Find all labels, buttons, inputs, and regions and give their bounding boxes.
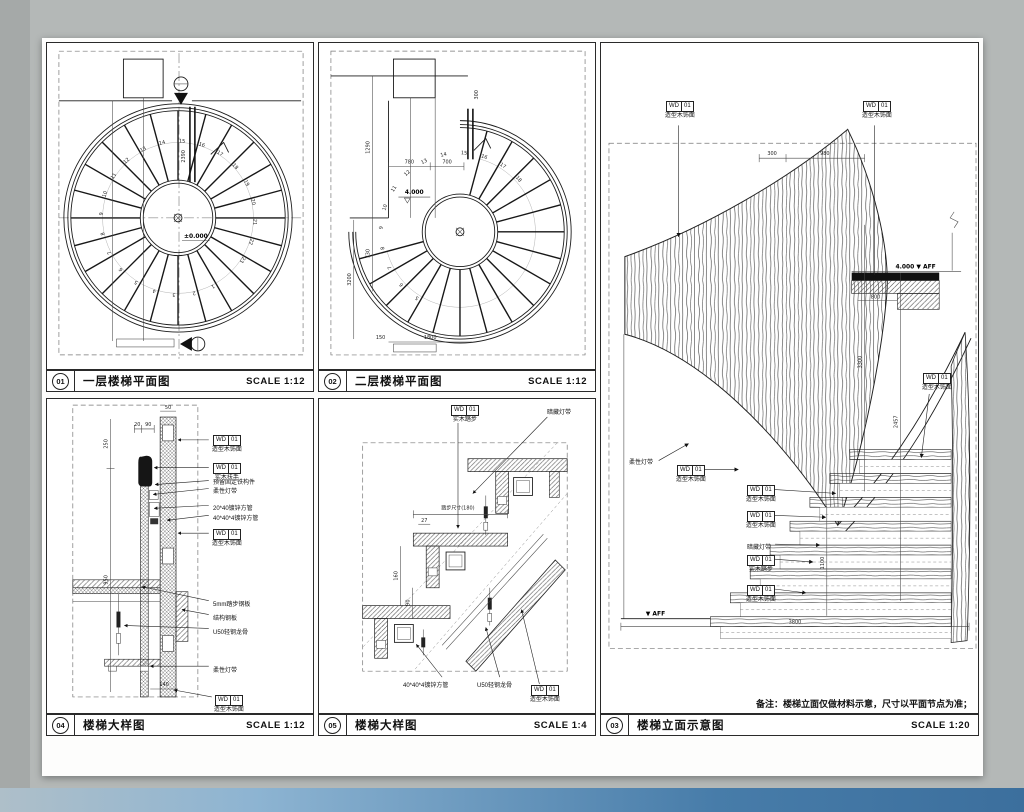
stair-tread-line bbox=[85, 164, 145, 199]
panel-title: 楼梯立面示意图 bbox=[637, 717, 725, 733]
stair-tread-line bbox=[487, 259, 534, 306]
material-tag: WD01造型木饰面 bbox=[923, 373, 951, 384]
tread-plate bbox=[73, 580, 160, 588]
stair-tread-line bbox=[496, 205, 560, 222]
dim-20: 20 bbox=[134, 422, 140, 428]
tread-number: 11 bbox=[390, 185, 398, 194]
dim-950: 950 bbox=[104, 575, 110, 584]
title-strip-05: 05 楼梯大样图 SCALE 1:4 bbox=[318, 714, 596, 736]
elevation-note: 备注：楼梯立面仅做材料示意，尺寸以平面节点为准； bbox=[756, 697, 972, 710]
stair-tread-line bbox=[493, 251, 551, 284]
tread-number: 15 bbox=[461, 150, 468, 156]
handrail-profile bbox=[138, 456, 152, 487]
dim-800: 800 bbox=[871, 294, 880, 300]
tread-number: 11 bbox=[110, 172, 118, 181]
title-strip-04: 04 楼梯大样图 SCALE 1:12 bbox=[46, 714, 314, 736]
tread-number: 2 bbox=[192, 289, 196, 296]
dim-1800: 1800 bbox=[424, 335, 437, 341]
dim-780: 780 bbox=[405, 159, 414, 165]
title-strip-01: 01 一层楼梯平面图 SCALE 1:12 bbox=[46, 370, 314, 392]
stair-tread-line bbox=[74, 228, 141, 246]
elevation-drawing: 800 4.000 ▼ AFF 300 980 3300 2457 1100 bbox=[601, 43, 978, 713]
label-tube-4040: 40*40*4镀锌方管 bbox=[403, 680, 448, 689]
stair-tread-line bbox=[211, 164, 271, 199]
tread-number: 10 bbox=[382, 204, 390, 212]
label-flex-light-strip: 柔性灯带 bbox=[213, 486, 237, 495]
stair-tread-line bbox=[85, 237, 145, 272]
stair-tread-line bbox=[124, 251, 159, 311]
panel-plan-level1: 1234567891011121314151617181920212223 23… bbox=[46, 42, 314, 370]
dim-3200: 3200 bbox=[347, 273, 353, 286]
level-4000: 4.000 bbox=[405, 189, 424, 196]
panel-elevation: 800 4.000 ▼ AFF 300 980 3300 2457 1100 bbox=[600, 42, 979, 714]
stair-tread-line bbox=[493, 180, 551, 213]
panel-scale: SCALE 1:20 bbox=[911, 720, 970, 731]
right-wood-band bbox=[951, 332, 970, 642]
detail-number: 03 bbox=[606, 717, 623, 734]
panel-title: 二层楼梯平面图 bbox=[355, 373, 443, 389]
tread-number: 13 bbox=[420, 158, 428, 166]
plan-level2-drawing: 56789101112131415161718 1290 730 780 700 bbox=[319, 43, 595, 369]
tread-number: 4 bbox=[152, 287, 157, 294]
tread-number: 22 bbox=[247, 238, 255, 246]
dim-1100: 1100 bbox=[820, 557, 826, 570]
dim-300: 300 bbox=[474, 90, 480, 99]
tread-number: 16 bbox=[198, 141, 206, 149]
panel-scale: SCALE 1:12 bbox=[528, 376, 587, 387]
tread-numbers: 56789101112131415161718 bbox=[379, 150, 523, 301]
label-embed-part: 预留固定铁构件 bbox=[213, 477, 255, 486]
plan-level1-drawing: 1234567891011121314151617181920212223 23… bbox=[47, 43, 313, 369]
stair-tread-line bbox=[211, 237, 271, 272]
panel-scale: SCALE 1:12 bbox=[246, 720, 305, 731]
tread-number: 17 bbox=[215, 150, 224, 158]
tread-number: 19 bbox=[242, 179, 250, 187]
label-hidden-light-strip: 暗藏灯带 bbox=[747, 542, 771, 551]
tag-label: 造型木饰面 bbox=[665, 112, 695, 120]
tread-number: 23 bbox=[238, 255, 246, 264]
dim-3300: 3300 bbox=[858, 356, 864, 369]
dim-160: 160 bbox=[393, 571, 399, 580]
tread-number: 8 bbox=[100, 232, 107, 236]
dim-27: 27 bbox=[421, 518, 427, 524]
tread-number: 7 bbox=[387, 265, 394, 271]
tread-number: 16 bbox=[480, 153, 488, 161]
dim-2390: 2390 bbox=[181, 150, 187, 163]
dim-300: 300 bbox=[767, 151, 776, 157]
dim-250: 250 bbox=[104, 439, 110, 448]
tread-number: 20 bbox=[249, 198, 256, 205]
label-5mm-plate: 5mm踏步钢板 bbox=[213, 599, 250, 608]
tread-number: 15 bbox=[179, 138, 186, 144]
material-tag: WD01实木扶手 bbox=[213, 463, 241, 474]
material-tag: WD01造型木饰面 bbox=[747, 485, 775, 496]
dim-90: 90 bbox=[145, 422, 151, 428]
panel-title: 一层楼梯平面图 bbox=[83, 373, 171, 389]
detail-number: 05 bbox=[324, 717, 341, 734]
stair-stringer bbox=[466, 560, 565, 671]
lower-tread bbox=[363, 606, 450, 619]
material-tag: WD01造型木饰面 bbox=[747, 585, 775, 596]
dim-90: 90 bbox=[405, 600, 411, 606]
material-tag: WD01造型木饰面 bbox=[677, 465, 705, 476]
material-tag: WD01实木踏步 bbox=[747, 555, 775, 566]
mid-tread bbox=[413, 533, 507, 546]
dim-2457: 2457 bbox=[893, 415, 899, 428]
stair-tread-line bbox=[150, 114, 168, 181]
stair-tread-line bbox=[433, 268, 450, 332]
label-flex-light-strip: 柔性灯带 bbox=[213, 665, 237, 674]
dim-730: 730 bbox=[366, 249, 372, 258]
desktop-left-strip bbox=[0, 0, 30, 790]
label-flex-light-strip: 柔性灯带 bbox=[629, 457, 653, 466]
wood-balustrade-ribbon bbox=[625, 129, 887, 525]
panel-detail-handrail: 250 950 20 90 50 140 bbox=[46, 398, 314, 714]
stair-tread-line bbox=[197, 251, 232, 311]
material-tag: WD01造型木饰面 bbox=[531, 685, 559, 696]
material-tag: WD01造型木饰面 bbox=[213, 529, 241, 540]
material-tag: WD01造型木饰面 bbox=[747, 511, 775, 522]
stair-tread-line bbox=[214, 190, 281, 208]
panel-title: 楼梯大样图 bbox=[83, 717, 146, 733]
stair-tread-line bbox=[496, 242, 560, 259]
detail-handrail-drawing: 250 950 20 90 50 140 bbox=[47, 399, 313, 713]
stair-tread-line bbox=[124, 125, 159, 185]
label-tube-4040: 40*40*4镀锌方管 bbox=[213, 513, 258, 522]
stair-tread-line bbox=[487, 158, 534, 205]
label-tube-2040: 20*40镀锌方管 bbox=[213, 503, 253, 512]
label-keel-u50: U50轻钢龙骨 bbox=[213, 627, 248, 636]
material-tag: WD01造型木饰面 bbox=[215, 695, 243, 706]
detail-number-wrap: 01 bbox=[47, 371, 75, 391]
material-tag: WD01造型木饰面 bbox=[666, 101, 694, 112]
dim-50: 50 bbox=[165, 405, 171, 411]
aff-bottom: ▼ AFF bbox=[646, 611, 665, 618]
stair-tread-line bbox=[408, 264, 441, 322]
level-0000: ±0.000 bbox=[184, 233, 208, 240]
tread-number: 14 bbox=[440, 151, 447, 158]
dim-980: 980 bbox=[820, 151, 829, 157]
tread-number: 21 bbox=[251, 219, 257, 226]
material-tag: WD01造型木饰面 bbox=[213, 435, 241, 446]
bottom-blue-bar bbox=[0, 788, 1024, 812]
dim-700: 700 bbox=[442, 159, 451, 165]
upper-tread bbox=[468, 459, 567, 472]
material-tag: WD01造型木饰面 bbox=[863, 101, 891, 112]
panel-detail-tread: 踏步尺寸(180) 27 160 90 WD01实木踏步 暗藏灯带 40*40*… bbox=[318, 398, 596, 714]
stair-tread-line bbox=[386, 259, 433, 306]
tread-number: 14 bbox=[158, 140, 165, 147]
stair-tread-line bbox=[197, 125, 232, 185]
tread-number: 9 bbox=[99, 212, 105, 215]
detail-number: 04 bbox=[52, 717, 69, 734]
stair-tread-line bbox=[188, 254, 206, 321]
panel-plan-level2: 56789101112131415161718 1290 730 780 700 bbox=[318, 42, 596, 370]
stair-tread-line bbox=[370, 251, 428, 284]
panel-scale: SCALE 1:4 bbox=[534, 720, 587, 731]
stair-tread-line bbox=[479, 264, 512, 322]
title-strip-03: 03 楼梯立面示意图 SCALE 1:20 bbox=[600, 714, 979, 736]
title-strip-02: 02 二层楼梯平面图 SCALE 1:12 bbox=[318, 370, 596, 392]
detail-number: 01 bbox=[52, 373, 69, 390]
label-keel-u50: U50轻钢龙骨 bbox=[477, 680, 512, 689]
label-struct-plate: 结构钢板 bbox=[213, 613, 237, 622]
detail-number: 02 bbox=[324, 373, 341, 390]
material-tag: WD01实木踏步 bbox=[451, 405, 479, 416]
tread-number: 10 bbox=[101, 190, 109, 198]
stair-tread-line bbox=[470, 268, 487, 332]
stair-tread-line bbox=[150, 254, 168, 321]
tag-num: 01 bbox=[682, 102, 693, 111]
dim-1290: 1290 bbox=[366, 141, 372, 154]
tread-number: 17 bbox=[498, 162, 507, 170]
ceiling-channel bbox=[105, 659, 161, 666]
level-4000-aff: 4.000 ▼ AFF bbox=[895, 264, 935, 271]
dim-140: 140 bbox=[159, 682, 168, 688]
dim-150: 150 bbox=[376, 335, 385, 341]
tag-code: WD bbox=[667, 102, 682, 111]
drawing-sheet: 1234567891011121314151617181920212223 23… bbox=[42, 38, 983, 776]
stair-tread-line bbox=[479, 142, 512, 200]
panel-title: 楼梯大样图 bbox=[355, 717, 418, 733]
tread-number: 9 bbox=[379, 226, 385, 229]
break-mark bbox=[950, 212, 958, 228]
label-hidden-light-strip: 暗藏灯带 bbox=[547, 407, 571, 416]
section-marker-top bbox=[174, 93, 188, 105]
section-marker-bottom bbox=[180, 337, 192, 351]
detail-tread-drawing: 踏步尺寸(180) 27 160 90 bbox=[319, 399, 595, 713]
tread-number: 6 bbox=[118, 266, 125, 272]
tread-number: 8 bbox=[380, 246, 387, 250]
tread-number: 3 bbox=[172, 291, 175, 297]
dim-3800: 3800 bbox=[789, 620, 802, 626]
panel-scale: SCALE 1:12 bbox=[246, 376, 305, 387]
